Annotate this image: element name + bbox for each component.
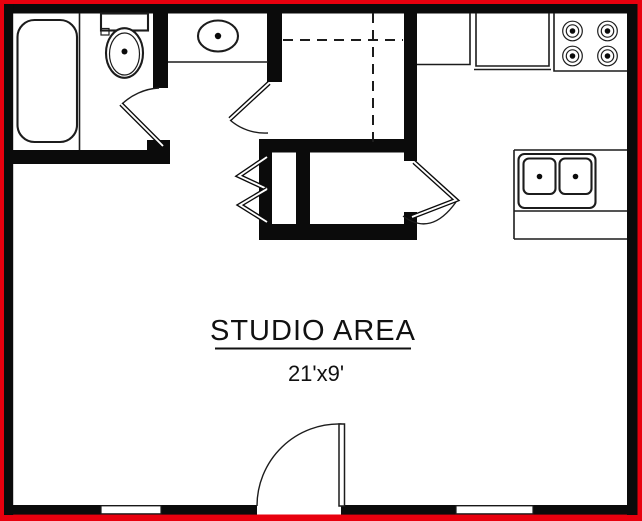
studio-area-label: STUDIO AREA	[210, 315, 416, 347]
bathtub-icon	[18, 20, 78, 142]
window-left	[101, 506, 161, 514]
studio-dimensions-label: 21'x9'	[288, 361, 344, 386]
window-right	[456, 506, 533, 514]
floor-background	[0, 0, 642, 521]
double-basin-sink-icon	[519, 154, 596, 208]
vanity-sink-icon	[198, 21, 238, 52]
floor-plan: STUDIO AREA 21'x9'	[0, 0, 642, 521]
